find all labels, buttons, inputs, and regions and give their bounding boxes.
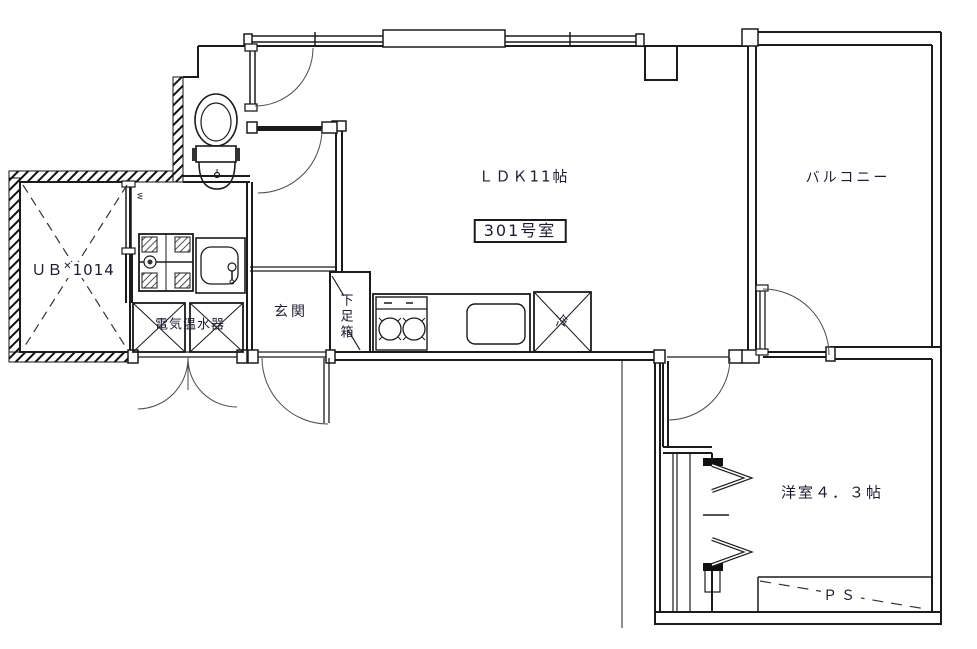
unit-bath-label: ＵＢ✕1014 [29,262,117,278]
wall-junctions [128,29,835,363]
door-direction-mark: w [135,192,144,199]
water-heater-label: 電気温水器 [155,319,225,332]
balcony-label: バルコニー [806,171,891,185]
wash-basin [196,238,245,293]
pipe-space-label: ＰＳ [821,589,861,603]
ub-dimension-mark: ✕ [63,261,72,272]
burner [403,318,425,340]
ub-prefix: ＵＢ [31,261,63,279]
entrance-door [262,358,329,424]
washroom-door [257,126,322,193]
refrigerator-label: 冷 [555,316,568,329]
ub-size: 1014 [73,261,115,279]
bedroom-label: 洋室４．３帖 [781,486,883,501]
window-center-box [383,30,505,47]
window-band [244,30,644,47]
toilet [192,94,240,189]
kitchen-counter [373,294,530,352]
unit-number-label: 301号室 [474,219,567,243]
burner [379,318,401,340]
floor-plan-drawing [0,0,977,649]
stove [376,297,427,350]
ldk-label: ＬＤＫ11帖 [478,170,569,185]
heater-closet-doors [138,357,237,409]
ldk-bedroom-door [668,358,730,420]
wall-segment [173,77,183,182]
wall-segment [9,178,20,362]
bath-door [122,181,135,254]
wall-segment [9,352,135,362]
balcony-door [756,285,829,355]
closet-folding-doors [703,458,748,571]
shoe-box-label: 下足箱 [339,293,352,341]
toilet-door [245,44,313,111]
doors [122,44,829,571]
entrance-label: 玄関 [274,305,308,319]
washer-pan [139,234,193,291]
kitchen-sink [467,304,525,344]
wall-segment [9,171,183,182]
floor-plan: ＬＤＫ11帖 301号室 バルコニー 洋室４．３帖 ＰＳ ＵＢ✕1014 電気温… [0,0,977,649]
